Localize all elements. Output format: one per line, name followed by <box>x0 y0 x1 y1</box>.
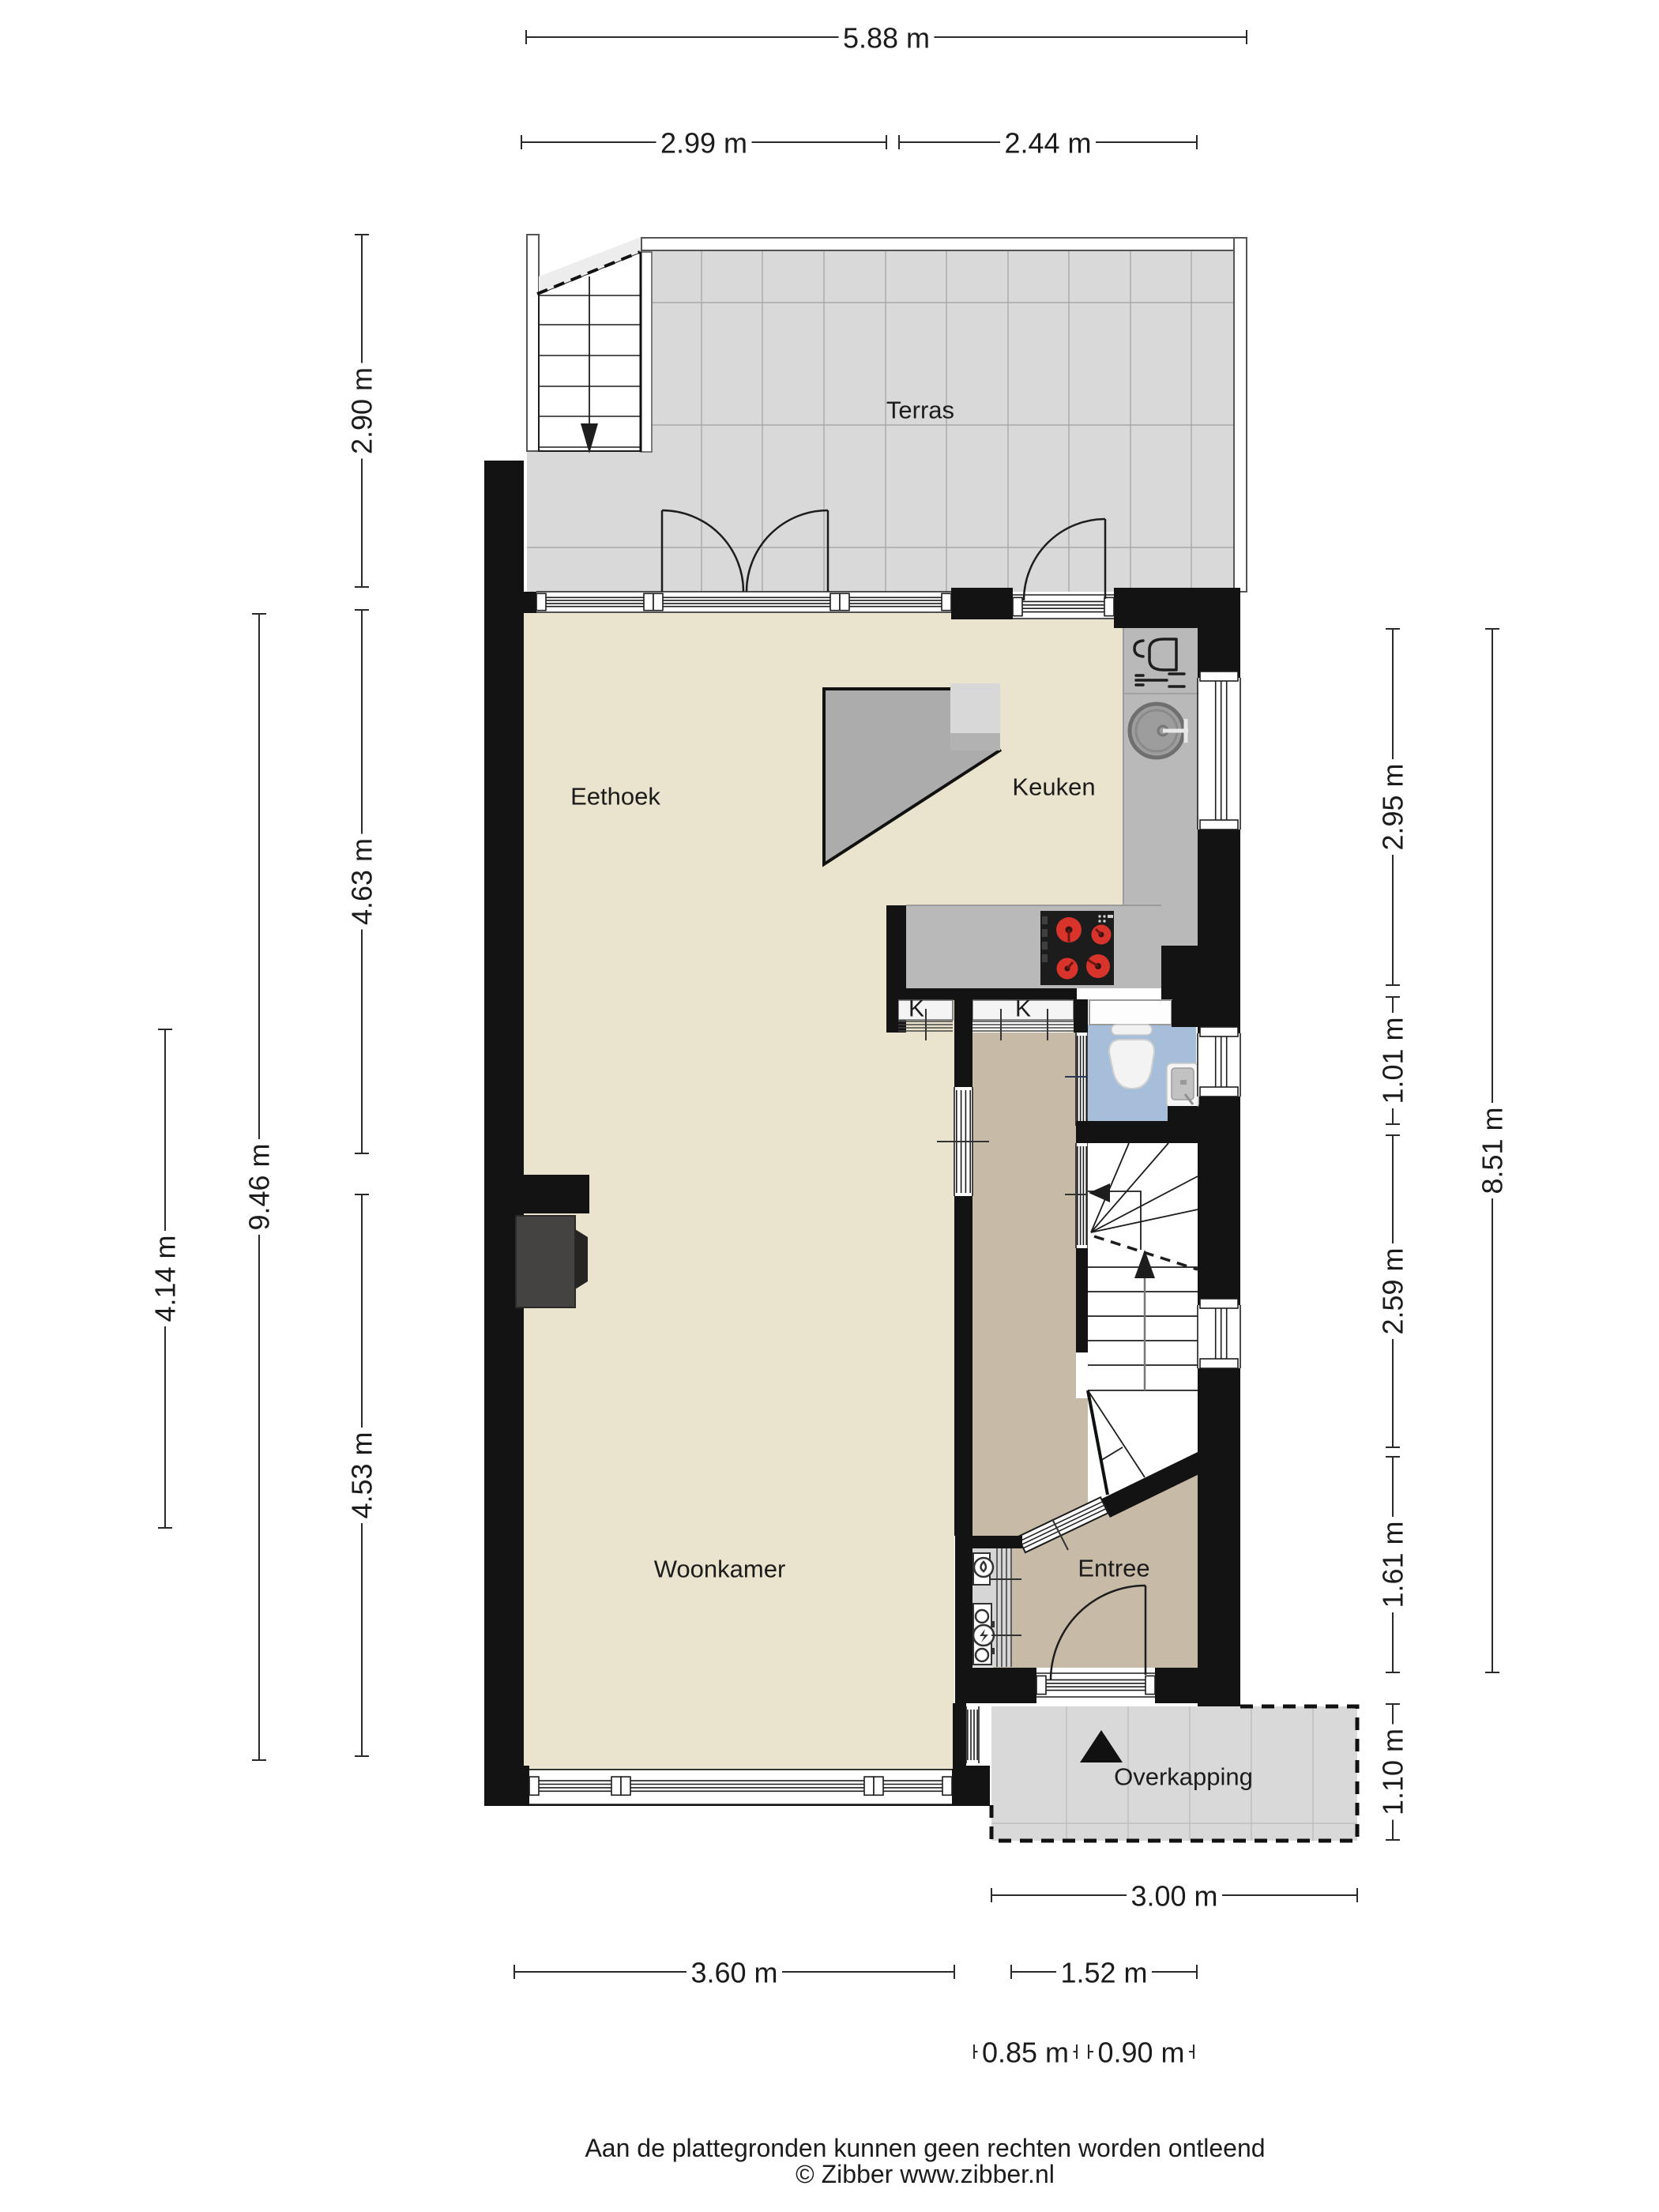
svg-text:3.60 m: 3.60 m <box>690 1957 777 1989</box>
svg-text:Eethoek: Eethoek <box>570 783 660 811</box>
svg-text:Keuken: Keuken <box>1012 773 1095 801</box>
svg-text:9.46 m: 9.46 m <box>243 1143 276 1230</box>
svg-text:4.63 m: 4.63 m <box>346 838 378 925</box>
svg-text:K: K <box>908 996 924 1022</box>
svg-text:2.44 m: 2.44 m <box>1004 127 1091 160</box>
svg-text:0.85 m: 0.85 m <box>982 2037 1069 2069</box>
svg-text:Entree: Entree <box>1078 1555 1149 1582</box>
svg-text:1.61 m: 1.61 m <box>1377 1521 1409 1608</box>
svg-text:2.59 m: 2.59 m <box>1377 1247 1409 1334</box>
svg-text:4.53 m: 4.53 m <box>346 1431 378 1518</box>
svg-text:Overkapping: Overkapping <box>1114 1763 1253 1791</box>
svg-text:Woonkamer: Woonkamer <box>654 1556 786 1583</box>
svg-text:8.51 m: 8.51 m <box>1477 1107 1509 1194</box>
svg-text:2.99 m: 2.99 m <box>660 127 747 160</box>
svg-text:K: K <box>1015 996 1031 1022</box>
svg-text:2.90 m: 2.90 m <box>346 367 378 454</box>
svg-text:Terras: Terras <box>886 397 954 424</box>
svg-text:© Zibber www.zibber.nl: © Zibber www.zibber.nl <box>796 2160 1055 2188</box>
svg-text:0.90 m: 0.90 m <box>1097 2037 1184 2069</box>
svg-text:Aan de plattegronden kunnen ge: Aan de plattegronden kunnen geen rechten… <box>585 2134 1265 2162</box>
svg-text:1.52 m: 1.52 m <box>1060 1957 1147 1989</box>
svg-text:2.95 m: 2.95 m <box>1377 763 1409 850</box>
svg-text:1.10 m: 1.10 m <box>1377 1729 1409 1815</box>
svg-text:5.88 m: 5.88 m <box>843 22 930 55</box>
svg-text:1.01 m: 1.01 m <box>1377 1017 1409 1104</box>
svg-text:4.14 m: 4.14 m <box>149 1235 182 1322</box>
svg-text:3.00 m: 3.00 m <box>1130 1880 1217 1913</box>
